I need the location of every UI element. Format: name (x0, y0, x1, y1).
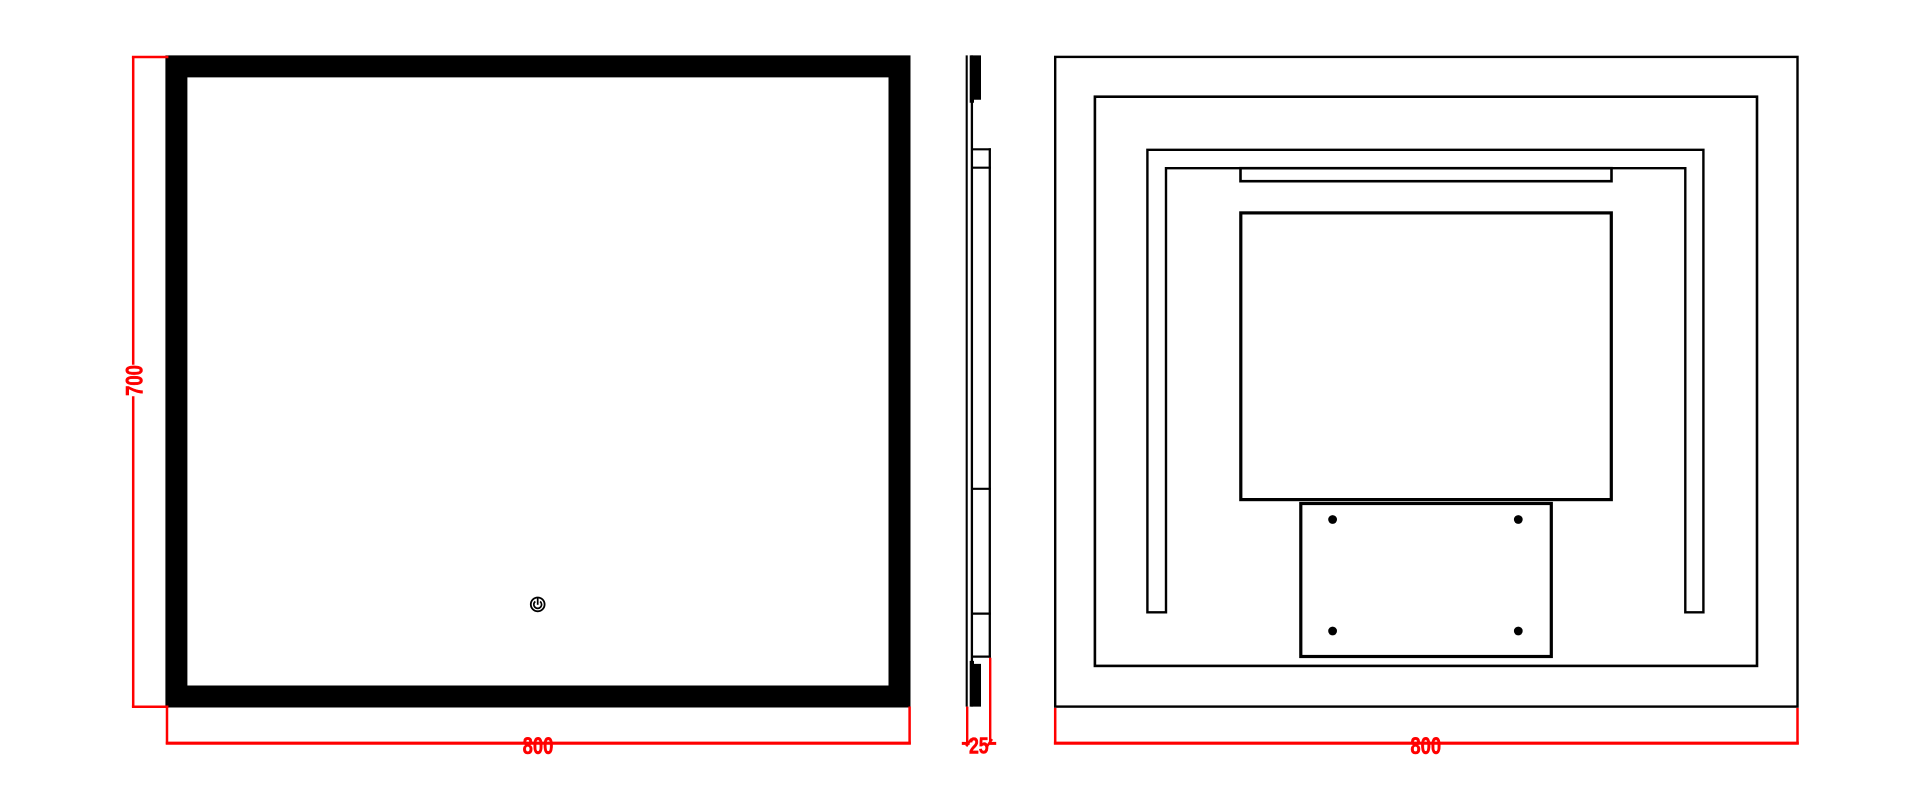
svg-text:25: 25 (969, 733, 989, 759)
svg-text:800: 800 (523, 733, 554, 760)
svg-text:700: 700 (121, 365, 148, 396)
svg-text:800: 800 (1410, 733, 1441, 760)
